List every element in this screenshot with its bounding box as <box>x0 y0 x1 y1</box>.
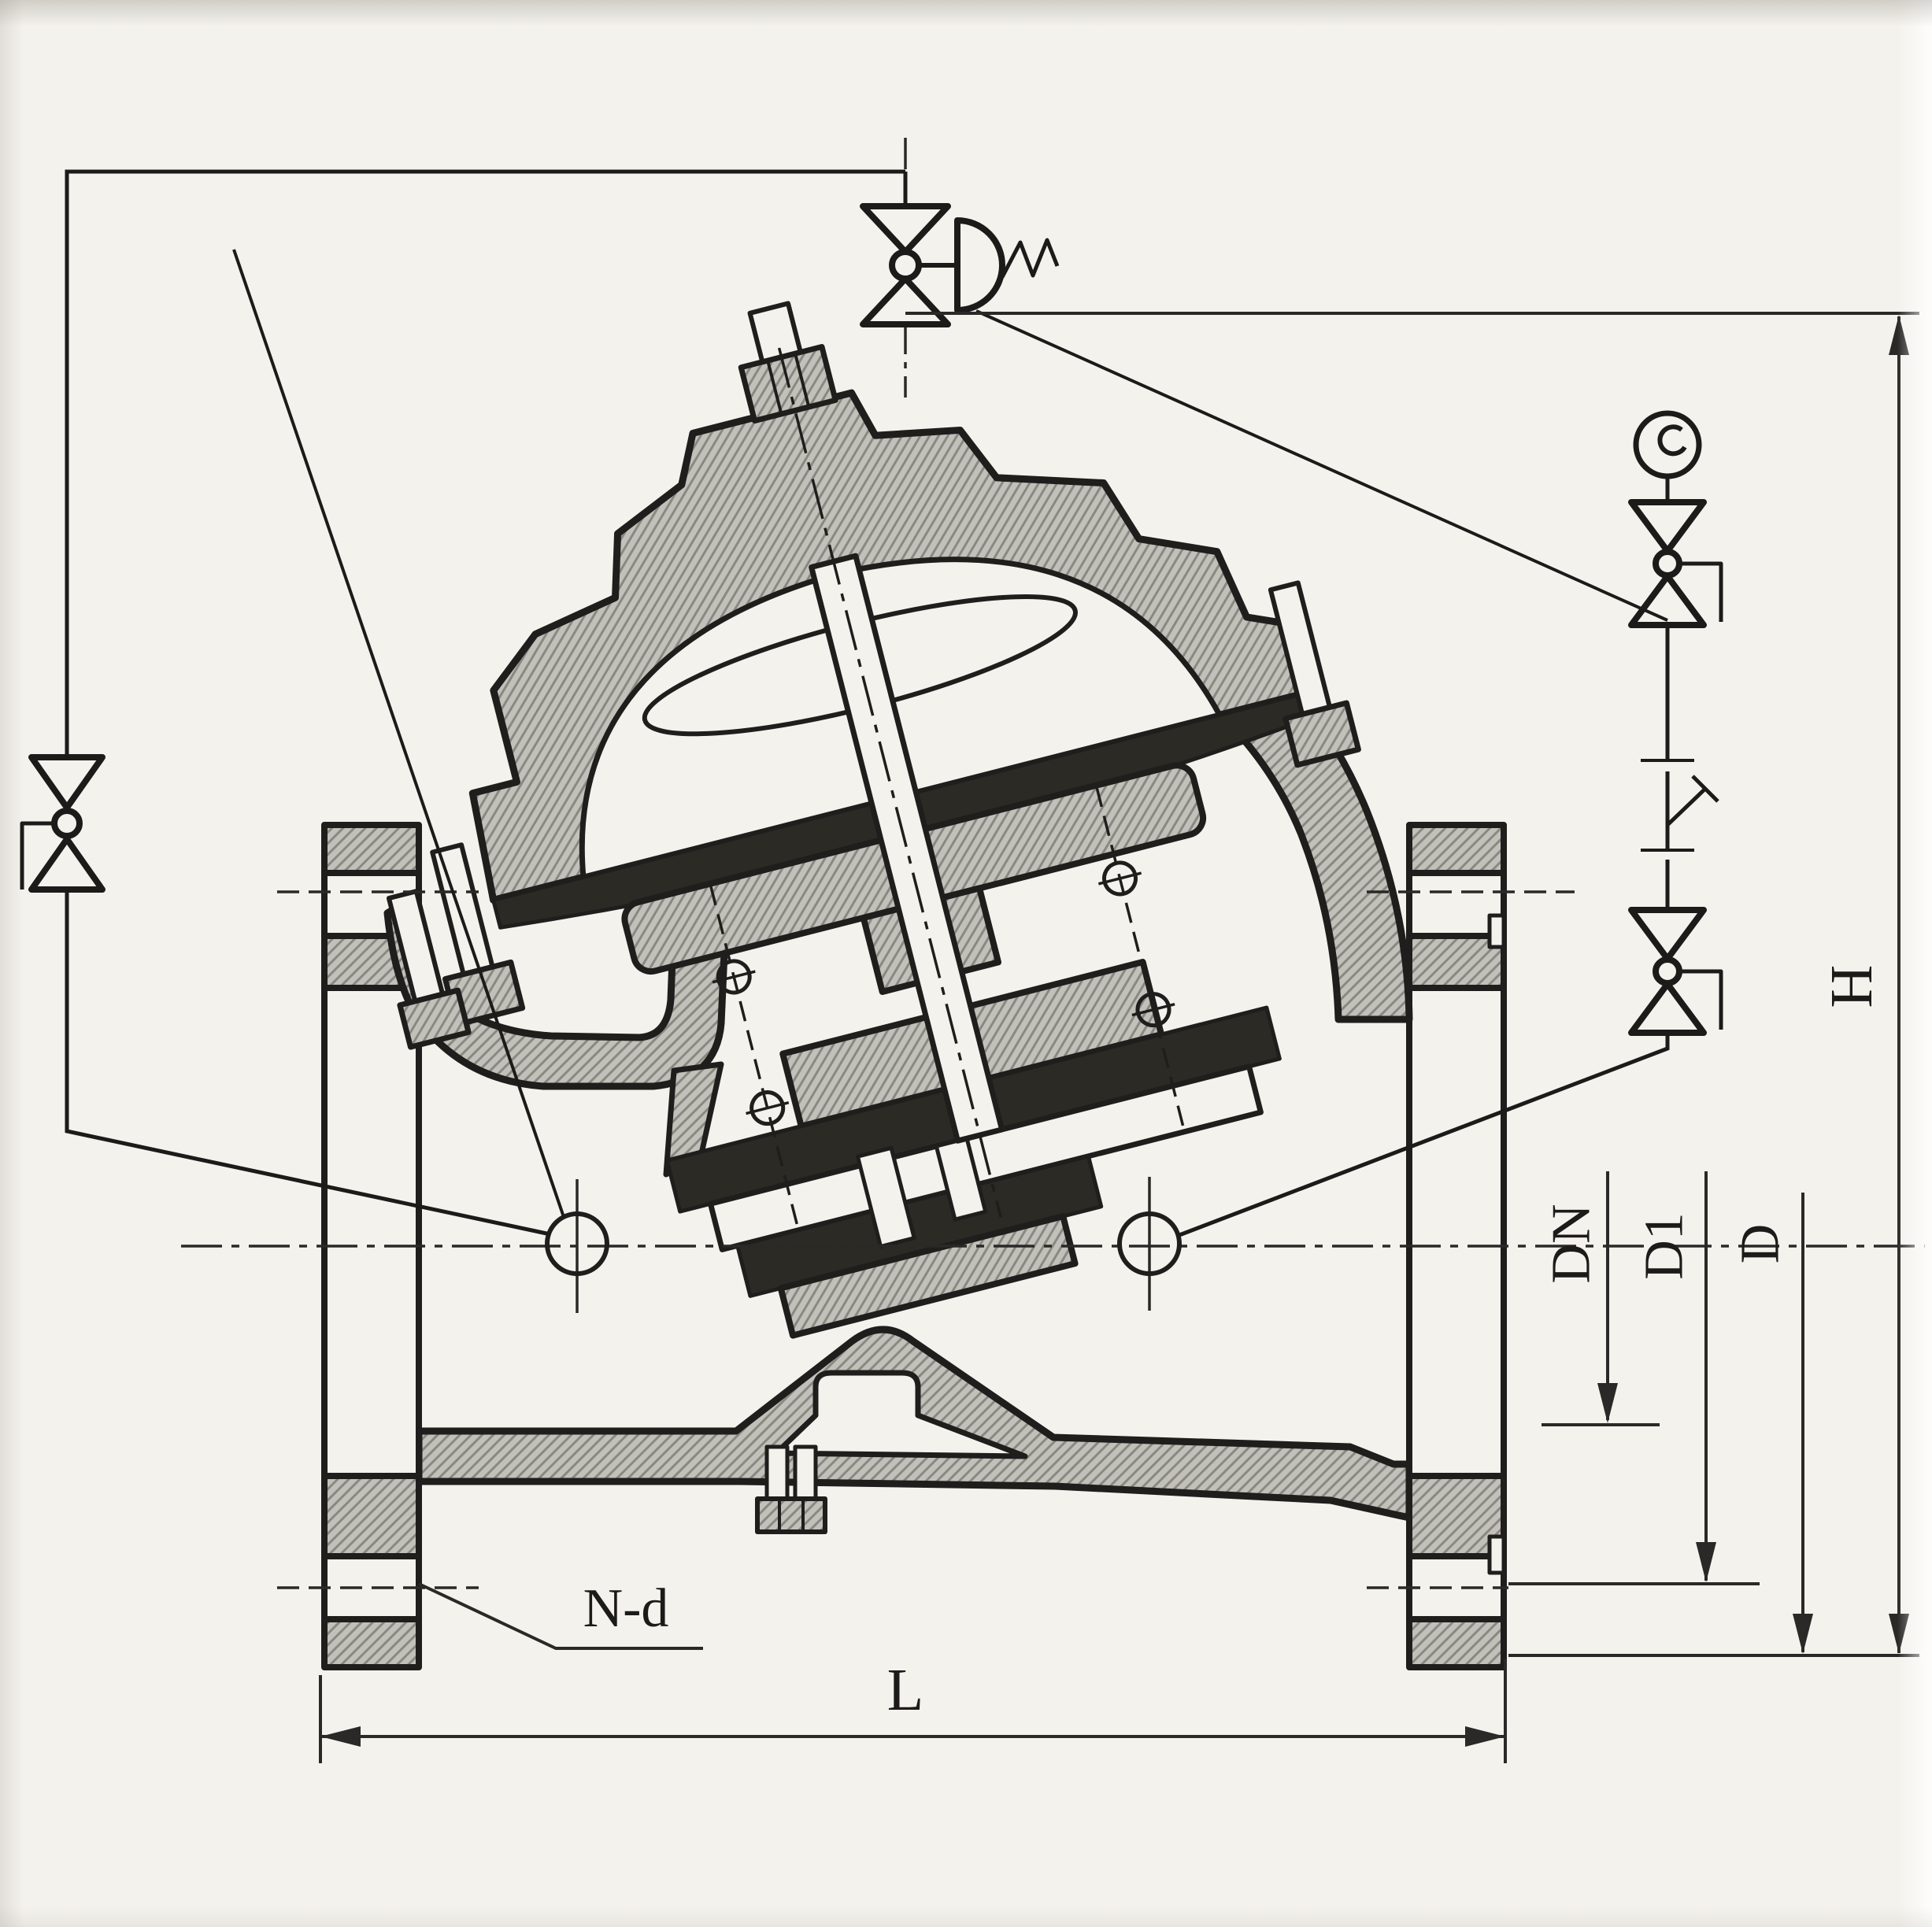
label-N-d: N-d <box>583 1578 669 1639</box>
label-H: H <box>1819 965 1885 1008</box>
label-DN: DN <box>1542 1204 1602 1283</box>
needle-plug-icon <box>1667 776 1718 825</box>
globe-valve-symbol-right-upper <box>1631 502 1721 625</box>
valve-drawing: L H DN D1 D N-d <box>0 0 1932 1927</box>
label-L: L <box>887 1657 923 1723</box>
globe-valve-symbol-right-lower <box>1631 910 1721 1033</box>
diaphragm-pilot-icon <box>957 220 1057 310</box>
globe-valve-symbol-left <box>22 757 102 890</box>
pressure-gauge-icon <box>1636 413 1699 476</box>
label-D1: D1 <box>1634 1212 1695 1280</box>
globe-valve-symbol-top <box>863 206 957 324</box>
drawing-canvas: L H DN D1 D N-d <box>0 0 1932 1927</box>
label-D: D <box>1730 1224 1791 1264</box>
